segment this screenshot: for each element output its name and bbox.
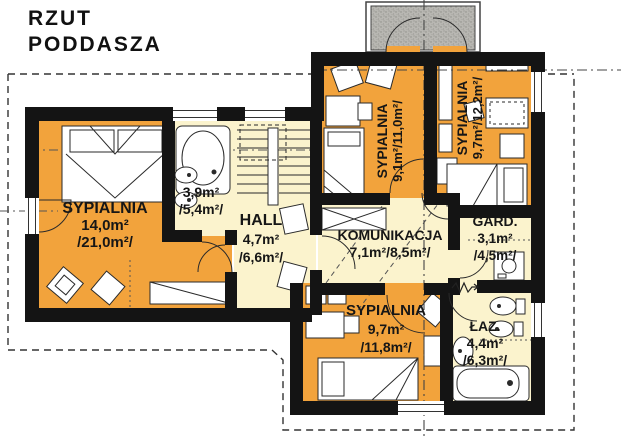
bathtub-icon bbox=[453, 366, 529, 401]
label-hall: HALL 4,7m² /6,6m²/ bbox=[230, 212, 292, 266]
double-bed-icon bbox=[62, 126, 168, 202]
page-title: RZUT PODDASZA bbox=[28, 6, 208, 58]
window-bedroom-right bbox=[531, 72, 545, 112]
room-name: SYPIALNIA bbox=[454, 63, 470, 173]
label-bathroom-small: 3,9m² /5,4m²/ bbox=[168, 184, 234, 218]
room-area: 3,9m² bbox=[168, 184, 234, 201]
room-floor-area: /4,5m²/ bbox=[456, 247, 534, 264]
window-lazienka bbox=[531, 303, 545, 337]
label-bedroom-left: SYPIALNIA 14,0m² /21,0m²/ bbox=[40, 200, 170, 251]
single-bed-icon bbox=[324, 128, 364, 204]
floor-plan: RZUT PODDASZA SYPIALNIA 14,0m² /21,0m²/ … bbox=[0, 0, 621, 437]
room-area: 4,4m² bbox=[448, 335, 522, 352]
single-bed3-icon bbox=[318, 358, 418, 400]
room-name: HALL bbox=[230, 212, 292, 230]
room-floor-area: /11,8m²/ bbox=[330, 338, 442, 356]
label-garderoba: GARD. 3,1m² /4,5m²/ bbox=[456, 213, 534, 264]
room-floor-area: /6,6m²/ bbox=[230, 248, 292, 266]
room-area: 9,1m²/11,0m²/ bbox=[390, 86, 406, 196]
label-bedroom-bottom: SYPIALNIA 9,7m² /11,8m²/ bbox=[330, 302, 442, 356]
window-bathroom bbox=[173, 107, 217, 121]
room-area: 7,1m²/8,5m²/ bbox=[330, 244, 450, 261]
room-area: 4,7m² bbox=[230, 230, 292, 248]
room-name: SYPIALNIA bbox=[330, 302, 442, 320]
room-name: SYPIALNIA bbox=[40, 200, 170, 217]
room-area: 3,1m² bbox=[456, 230, 534, 247]
label-komunikacja: KOMUNIKACJA 7,1m²/8,5m²/ bbox=[330, 227, 450, 261]
room-area: 9,7m² bbox=[330, 320, 442, 338]
toilet2-icon bbox=[490, 297, 525, 315]
label-bedroom-top-middle: SYPIALNIA 9,1m²/11,0m²/ bbox=[372, 86, 408, 196]
room-floor-area: /21,0m²/ bbox=[40, 234, 170, 251]
window-bedroom-bottom bbox=[398, 401, 444, 415]
room-floor-area: /5,4m²/ bbox=[168, 201, 234, 218]
terrace bbox=[366, 2, 480, 52]
room-area: 14,0m² bbox=[40, 217, 170, 234]
window-stairs bbox=[245, 107, 285, 121]
label-lazienka: ŁAZ. 4,4m² /6,3m²/ bbox=[448, 318, 522, 369]
label-bedroom-top-right: SYPIALNIA 9,7m²/12,2m²/ bbox=[452, 63, 488, 173]
room-name: SYPIALNIA bbox=[374, 86, 390, 196]
room-name: KOMUNIKACJA bbox=[330, 227, 450, 244]
room-name: ŁAZ. bbox=[448, 318, 522, 335]
door-opening-left bbox=[25, 198, 39, 234]
table-icon bbox=[150, 282, 232, 304]
room-floor-area: /6,3m²/ bbox=[448, 352, 522, 369]
room-area: 9,7m²/12,2m²/ bbox=[470, 63, 486, 173]
room-name: GARD. bbox=[456, 213, 534, 230]
